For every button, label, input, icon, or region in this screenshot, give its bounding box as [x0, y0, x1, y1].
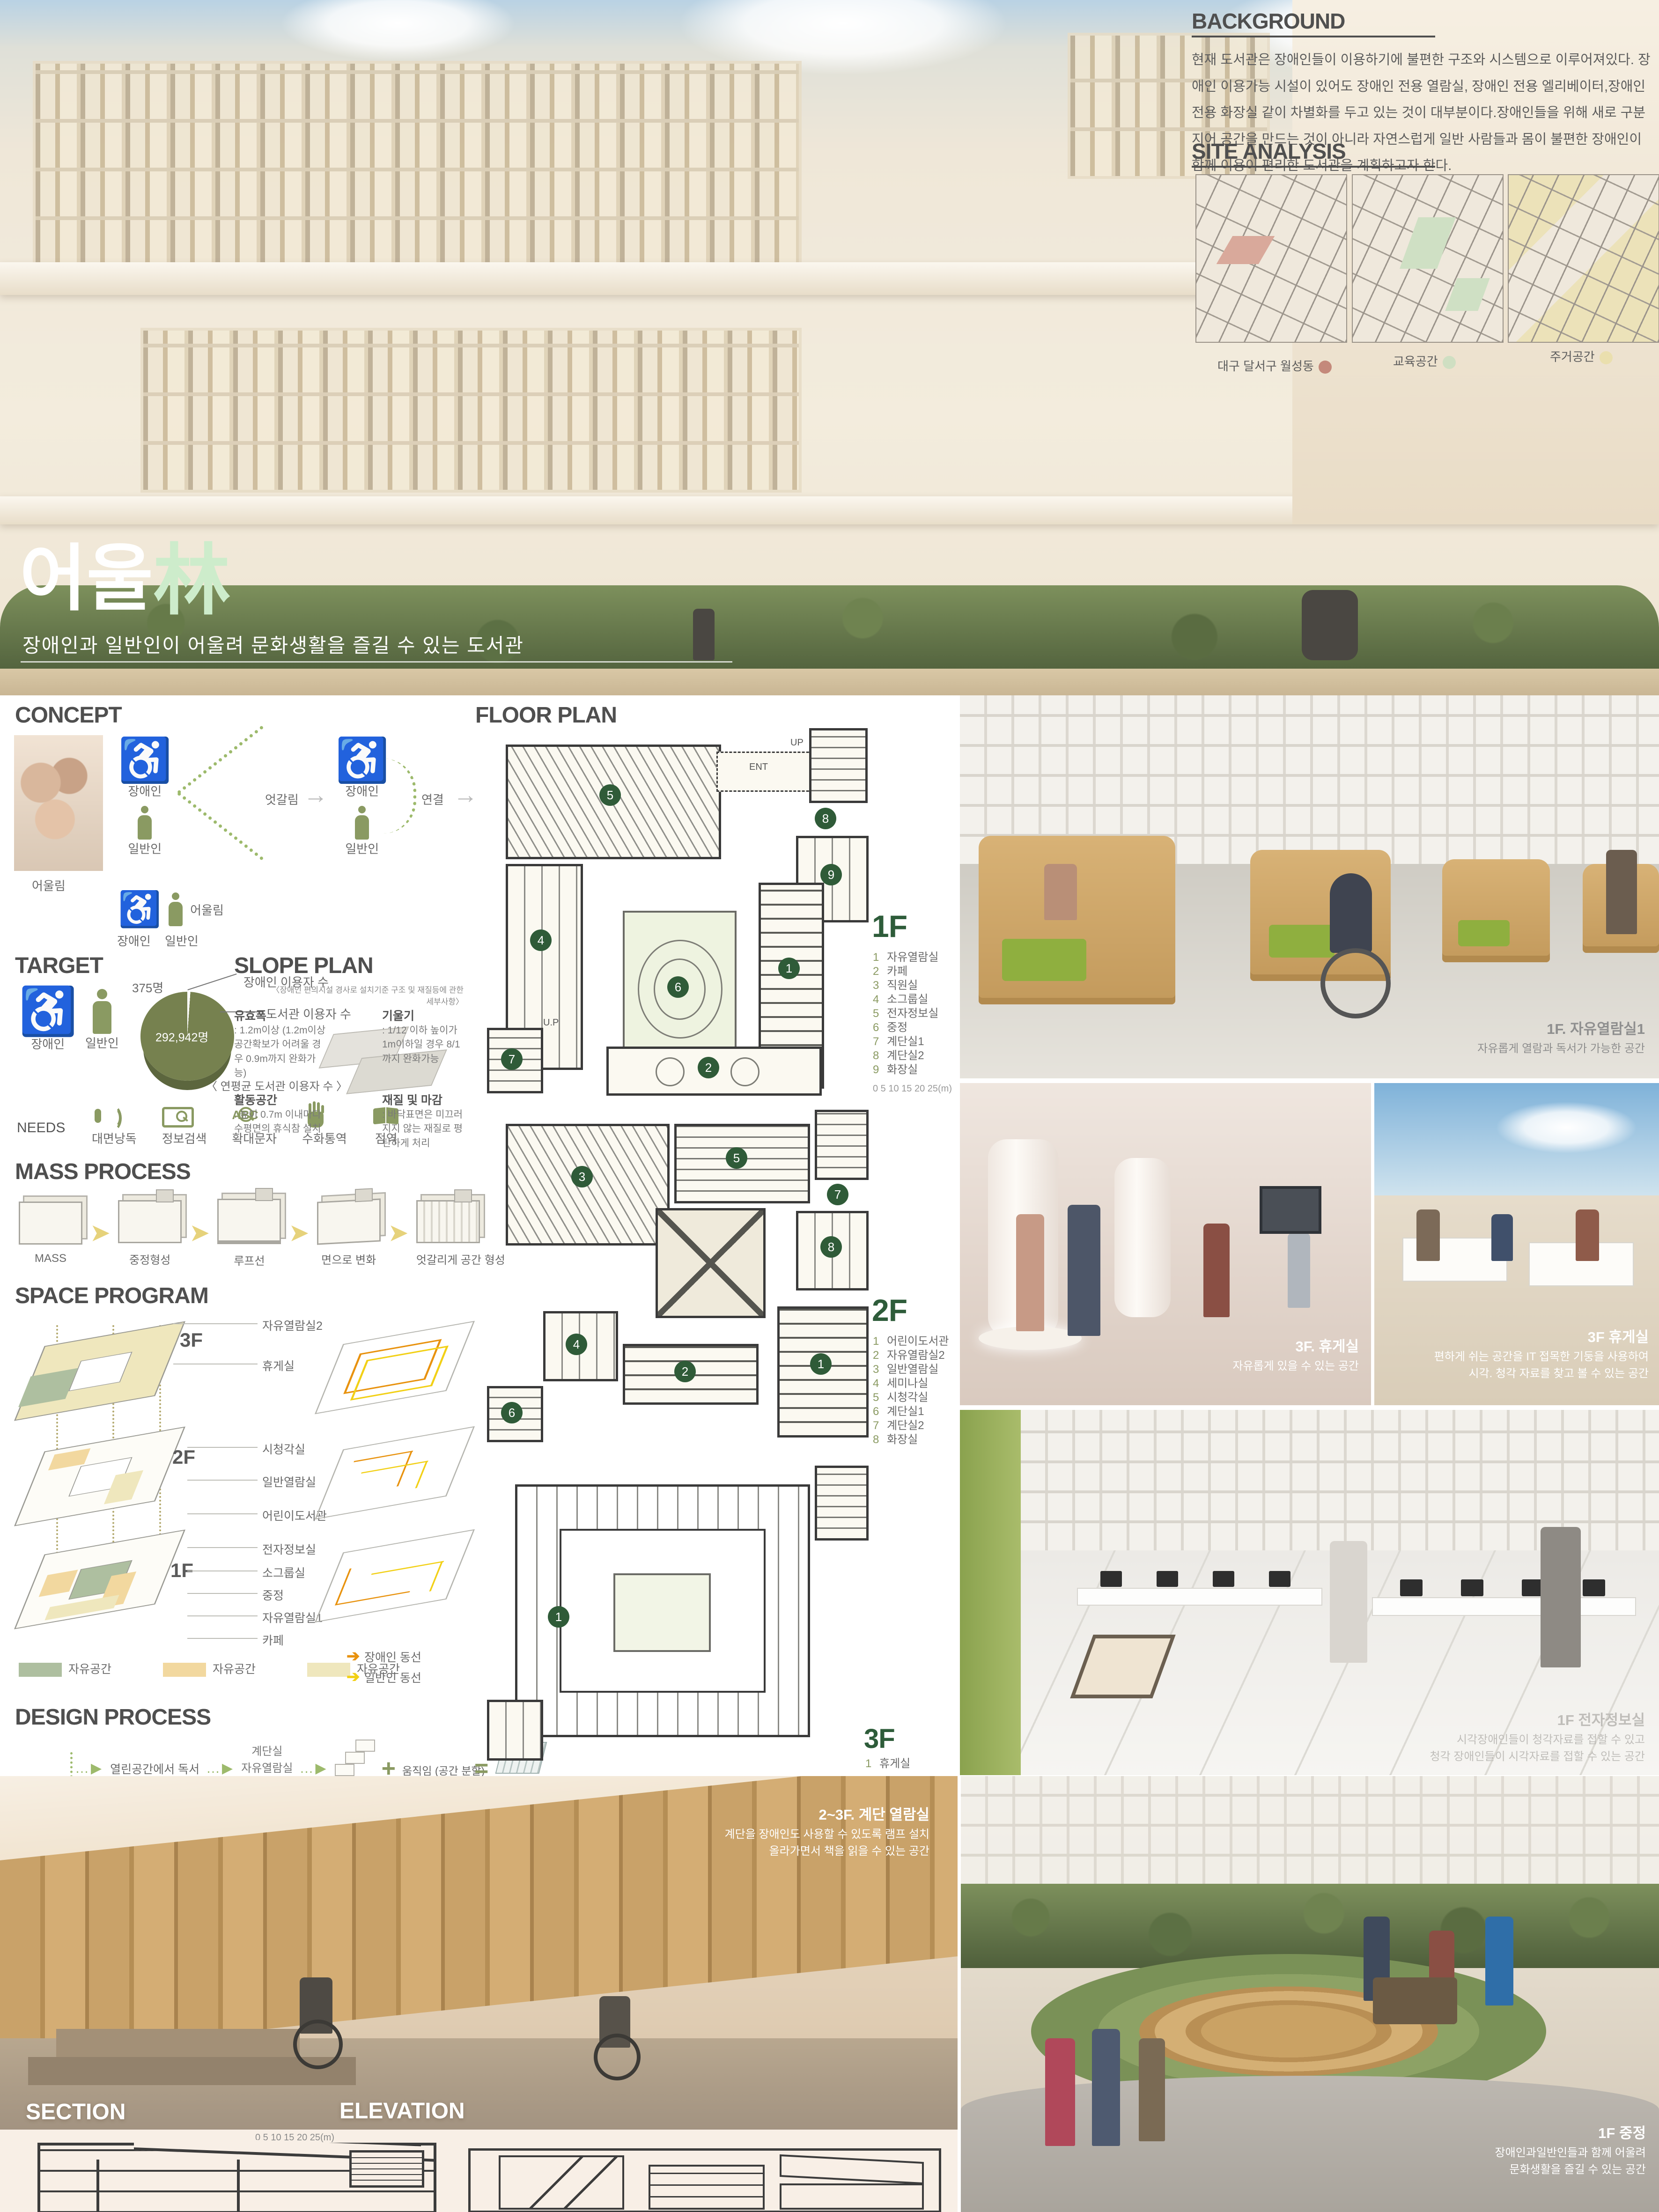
- ground-path: [0, 669, 1659, 695]
- legend-item: 5시청각실: [873, 1391, 949, 1405]
- room-badge: 7: [501, 1048, 523, 1070]
- tablet-display: [1213, 1571, 1234, 1587]
- stair-reading-caption: 2~3F. 계단 열람실 계단을 장애인도 사용할 수 있도록 램프 설치 올라…: [564, 1804, 929, 1860]
- connect-label: 연결: [421, 790, 444, 808]
- cross-arrows-icon: [178, 749, 258, 843]
- plate-1f: [14, 1529, 185, 1629]
- disabled-flow-path: [335, 1591, 410, 1606]
- room-badge: 2: [674, 1361, 696, 1382]
- disabled-flow-path: [354, 1451, 413, 1462]
- up-label: U.P: [543, 1018, 559, 1028]
- cloud-shape: [281, 0, 515, 61]
- step-platform: [56, 2029, 300, 2057]
- pie-small-value: 375명: [132, 979, 163, 996]
- flow-legend-disabled: ➔ 장애인 동선: [347, 1648, 421, 1665]
- room-badge: 1: [548, 1606, 569, 1628]
- dp-plus-label: 움직임 (공간 분할): [402, 1762, 468, 1778]
- plan-scale-note: 0 5 10 15 20 25(m): [873, 1084, 952, 1094]
- leader-line: [187, 1480, 258, 1481]
- arrow-icon: ➤: [289, 1222, 308, 1245]
- callout-line: [187, 973, 236, 990]
- leader-line: [173, 1364, 258, 1364]
- floor-slab: [0, 262, 1292, 295]
- person-figure: [1139, 2038, 1165, 2141]
- plan-void: [656, 1208, 766, 1318]
- general-flow-path: [415, 1461, 428, 1489]
- info-search-icon: [162, 1101, 190, 1129]
- legend-floor-2f: 2F: [872, 1292, 907, 1328]
- person-icon: 일반인: [85, 989, 119, 1051]
- mass-step-diagram: [19, 1202, 82, 1245]
- leader-line: [187, 1447, 258, 1448]
- slope-item-name: 재질 및 마감: [382, 1094, 442, 1107]
- wheelchair-icon: ♿: [118, 739, 172, 782]
- leader-line: [187, 1593, 258, 1594]
- person-figure: [1606, 850, 1637, 934]
- map-label-location: 대구 달서구 월성동: [1217, 357, 1332, 374]
- dotted-arrow-icon: …▶: [75, 1760, 103, 1777]
- tablet-display: [1100, 1571, 1122, 1587]
- room-label: 자유열람실1: [262, 1609, 323, 1626]
- slope-plan-title: SLOPE PLAN: [234, 953, 373, 979]
- rest-area-patch: [18, 1368, 78, 1407]
- person-figure: [693, 609, 715, 660]
- room-patch: [44, 1595, 119, 1620]
- needs-label: NEEDS: [17, 1120, 65, 1136]
- person-figure: [1068, 1205, 1100, 1336]
- wheelchair-user-figure: [1330, 873, 1372, 953]
- legend-item: 8화장실: [873, 1433, 949, 1447]
- person-figure: [1203, 1224, 1230, 1317]
- legend-item: 5전자정보실: [873, 1007, 952, 1021]
- legend-chip: [163, 1663, 206, 1677]
- mass-step-label: MASS: [19, 1252, 82, 1265]
- photo-caption: 3F. 휴게실 자유롭게 있을 수 있는 공간: [1097, 1336, 1359, 1375]
- slope-item-desc: : 높이 0.7m 이내마다 수평면의 휴식참 설치: [234, 1108, 328, 1136]
- photo-lounge: 3F. 휴게실 자유롭게 있을 수 있는 공간: [960, 1083, 1371, 1405]
- leader-line: [187, 1615, 258, 1616]
- legend-dot: [1600, 351, 1613, 364]
- group2-bottom-label: 일반인: [335, 840, 389, 857]
- background-section-title: BACKGROUND: [1192, 8, 1655, 34]
- orange-arrow-icon: ➔: [347, 1647, 364, 1665]
- flow-plate-3f: [315, 1321, 475, 1414]
- legend-item: 7계단실2: [873, 1419, 949, 1433]
- pie-big-value: 292,942명: [155, 1028, 208, 1045]
- disabled-flow-path: [335, 1568, 352, 1605]
- flow-legend-general: ➔ 일반인 동선: [347, 1669, 421, 1686]
- plan-court-void: [613, 1573, 711, 1652]
- leader-line: [173, 1323, 258, 1324]
- person-figure: [1541, 1527, 1581, 1667]
- site-map-location: [1195, 174, 1347, 343]
- space-legend-item: 자유공간: [19, 1660, 111, 1677]
- wheelchair-icon: ♿: [19, 985, 77, 1038]
- project-subtitle: 장애인과 일반인이 어울려 문화생활을 즐길 수 있는 도서관: [22, 630, 524, 658]
- building-interior-band: [961, 1776, 1659, 1884]
- tablet-display: [1583, 1579, 1605, 1596]
- needs-item-label: 정보검색: [162, 1129, 207, 1147]
- room-badge: 7: [827, 1184, 848, 1205]
- tablet-display: [1461, 1579, 1483, 1596]
- person-figure: [1092, 2029, 1120, 2146]
- room-badge: 8: [820, 1236, 842, 1258]
- mass-step-label: 면으로 변화: [317, 1251, 381, 1267]
- heading-rule: [1192, 166, 1435, 168]
- pod-cushion: [1269, 925, 1335, 958]
- wheelchair-wheel: [1320, 948, 1391, 1018]
- room-label: 전자정보실: [262, 1541, 316, 1557]
- space-legend-item: 자유공간: [163, 1660, 256, 1677]
- person-figure: [1016, 1214, 1044, 1331]
- floor-marker-3f: 3F: [180, 1329, 203, 1351]
- slope-item-desc: : 1/12 이하 높이가 1m이하일 경우 8/1까지 완화가능: [382, 1024, 466, 1066]
- legend-item: 6계단실1: [873, 1405, 949, 1419]
- site-analysis-title: SITE ANALYSIS: [1192, 139, 1346, 164]
- room-badge: 6: [667, 976, 689, 998]
- reading-pod: [1442, 859, 1550, 962]
- wheelchair-wheel: [293, 2020, 343, 2069]
- legend-item: 7계단실1: [873, 1035, 952, 1049]
- presentation-board: 어울 林 장애인과 일반인이 어울려 문화생활을 즐길 수 있는 도서관 BAC…: [0, 0, 1659, 2212]
- yellow-arrow-icon: ➔: [347, 1668, 364, 1686]
- person-figure: [1416, 1209, 1440, 1261]
- target-title: TARGET: [15, 953, 103, 979]
- slope-item-name: 활동공간: [234, 1094, 277, 1107]
- cloud-shape: [1496, 1102, 1637, 1153]
- general-flow-path: [361, 1460, 428, 1474]
- room-label: 자유열람실2: [262, 1317, 323, 1334]
- bookshelf-wall-lower: [140, 328, 802, 493]
- room-badge: 1: [810, 1353, 832, 1375]
- site-marker: [1217, 236, 1275, 264]
- plan-stair2: [809, 728, 868, 803]
- slope-plan-subtitle: 〈장애인 편의시설 경사로 설치기준 구조 및 재질등에 관한 세부사항〉: [262, 983, 464, 1007]
- title-underline: [21, 661, 732, 663]
- result-right-label: 일반인: [165, 932, 199, 949]
- cross-label: 엇갈림: [265, 790, 299, 808]
- legend-item: 3직원실: [873, 979, 952, 993]
- display-table: [1077, 1588, 1322, 1606]
- legend-item: 4소그룹실: [873, 993, 952, 1007]
- wheelchair-wheel: [594, 2034, 641, 2080]
- arrow-right-icon: →: [453, 783, 478, 807]
- space-program-title: SPACE PROGRAM: [15, 1283, 208, 1309]
- target-right-label: 일반인: [85, 1034, 119, 1051]
- mass-step-diagram: [217, 1199, 281, 1244]
- photo-free-reading-room: 1F. 자유열람실1 자유롭게 열람과 독서가 가능한 공간: [960, 695, 1659, 1078]
- disabled-flow-path: [397, 1451, 413, 1486]
- legend-dot: [1443, 356, 1456, 369]
- room-label: 시청각실: [262, 1440, 305, 1457]
- needs-item-label: 대면낭독: [92, 1129, 137, 1147]
- room-label: 중정: [262, 1586, 284, 1603]
- plan-2f: 3 5 7 8 1 4 2 6: [487, 1110, 866, 1442]
- section-label: SECTION: [26, 2099, 125, 2125]
- tablet-display: [1400, 1579, 1423, 1596]
- design-process-title: DESIGN PROCESS: [15, 1704, 211, 1730]
- person-figure: [1044, 864, 1077, 920]
- heading-rule: [1192, 36, 1435, 37]
- general-flow-path: [429, 1561, 443, 1592]
- legend-item: 4세미나실: [873, 1377, 949, 1391]
- leader-line: [187, 1513, 258, 1514]
- general-flow-path: [371, 1561, 444, 1575]
- legend-floor-3f: 3F: [864, 1723, 895, 1755]
- person-figure: [1288, 1233, 1310, 1308]
- arrow-right-icon: →: [303, 783, 328, 807]
- room-badge: 5: [599, 784, 621, 806]
- person-figure: [1330, 1541, 1367, 1663]
- tablet-display: [1157, 1571, 1178, 1587]
- room-badge: 1: [778, 958, 800, 979]
- room-badge: 5: [726, 1147, 747, 1169]
- legend-item: 8계단실2: [873, 1049, 952, 1063]
- legend-chip: [307, 1663, 350, 1677]
- legend-item: 3일반열람실: [873, 1363, 949, 1377]
- person-figure: [1576, 1209, 1599, 1261]
- pod-cushion: [1458, 920, 1510, 946]
- room-label: 일반열람실: [262, 1473, 316, 1490]
- leader-line: [187, 1547, 258, 1548]
- it-column: [1114, 1158, 1171, 1317]
- drawings-panel: 0 5 10 15 20 25(m): [0, 2130, 958, 2212]
- plan-stair2: [815, 1110, 869, 1180]
- courtyard-caption: 1F 중정 장애인과일반인들과 함께 어울려 문화생활을 즐길 수 있는 공간: [1346, 2123, 1646, 2178]
- concept-title: CONCEPT: [15, 702, 122, 728]
- legend-item: 6중정: [873, 1021, 952, 1035]
- floor-marker-2f: 2F: [172, 1446, 195, 1468]
- legend-floor-1f: 1F: [872, 908, 907, 944]
- bookshelf-wall-upper: [33, 61, 802, 268]
- legend-item: 1휴게실: [865, 1757, 910, 1771]
- map-label-education: 교육공간: [1393, 352, 1456, 369]
- legend-item: 9화장실: [873, 1063, 952, 1077]
- person-figure: [1491, 1214, 1513, 1261]
- photo-electronic-room: 1F 전자정보실 시각장애인들이 청각자료를 접할 수 있고 청각 장애인들이 …: [960, 1410, 1659, 1775]
- photo-caption: 1F 전자정보실 시각장애인들이 청각자료를 접할 수 있고 청각 장애인들이 …: [1177, 1710, 1645, 1765]
- legend-item: 2카페: [873, 965, 952, 979]
- room-badge: 3: [571, 1166, 593, 1187]
- concept-photo-caption: 어울림: [32, 877, 66, 894]
- education-zone: [1400, 217, 1456, 269]
- site-map-residential: [1508, 174, 1659, 343]
- person-icon: [169, 892, 183, 926]
- concept-photo: [14, 735, 103, 871]
- wood-bench: [1373, 1977, 1457, 2024]
- slope-item-name: 유효폭: [234, 1010, 266, 1023]
- arrow-icon: ➤: [389, 1222, 408, 1245]
- plan-stair: [815, 1466, 869, 1541]
- photo-caption: 3F 휴게실 편하게 쉬는 공간을 IT 접목한 기둥을 사용하여 시각. 청각…: [1386, 1327, 1649, 1382]
- project-title-hanja: 林: [153, 542, 230, 619]
- dotted-arrow-icon: …▶: [206, 1760, 235, 1777]
- legend-item: 2자유열람실2: [873, 1349, 949, 1363]
- slope-item-desc: : 바닥표면은 미끄러지지 않는 재질로 평탄하게 처리: [382, 1108, 466, 1150]
- display-table: [1372, 1597, 1636, 1616]
- plan-3f: 1: [487, 1456, 866, 1770]
- room-badge: 8: [815, 808, 836, 829]
- site-map-education: [1352, 174, 1504, 343]
- flow-plate-2f: [315, 1426, 475, 1519]
- dp-goal: 열린공간에서 독서: [110, 1760, 199, 1777]
- education-zone: [1445, 278, 1489, 311]
- photo-caption: 1F. 자유열람실1 자유롭게 열람과 독서가 가능한 공간: [1224, 1018, 1645, 1057]
- arrow-icon: ➤: [190, 1222, 209, 1245]
- plan-1f: 5 ENT UP 8 9 4 6 1 2 7 U.P: [487, 723, 866, 1098]
- leader-line: [187, 1638, 258, 1639]
- pod-cushion: [1002, 939, 1086, 981]
- elevation-label: ELEVATION: [339, 2098, 465, 2124]
- person-figure: [1045, 2038, 1075, 2146]
- room-label: 카페: [262, 1631, 284, 1648]
- green-wall: [960, 1410, 1021, 1775]
- entrance-label: ENT: [749, 762, 768, 773]
- tablet-display: [1269, 1571, 1290, 1587]
- photo-rooftop-rest: 3F 휴게실 편하게 쉬는 공간을 IT 접목한 기둥을 사용하여 시각. 청각…: [1374, 1083, 1659, 1405]
- room-label: 소그룹실: [262, 1564, 305, 1581]
- wall-screen: [1260, 1186, 1321, 1234]
- mass-step-diagram: [416, 1200, 480, 1243]
- room-badge: 4: [530, 929, 552, 951]
- arrow-icon: ➤: [91, 1222, 110, 1245]
- up-label: UP: [790, 737, 804, 748]
- photographer-figure: [1302, 590, 1358, 660]
- group1-bottom-label: 일반인: [118, 840, 172, 857]
- legend-item: 1어린이도서관: [873, 1335, 949, 1349]
- stairs-icon: [335, 1740, 375, 1776]
- mass-step-label: 중정형성: [118, 1251, 182, 1267]
- dotted-arrow-icon: …▶: [300, 1760, 328, 1777]
- connect-arc-icon: [380, 759, 416, 833]
- hero-render-image: 어울 林 장애인과 일반인이 어울려 문화생활을 즐길 수 있는 도서관 BAC…: [0, 0, 1659, 695]
- wheelchair-icon: ♿: [118, 892, 161, 927]
- room-badge: 6: [501, 1402, 523, 1423]
- map-label-residential: 주거공간: [1550, 347, 1613, 365]
- slope-item-name: 기울기: [382, 1010, 414, 1023]
- legend-item: 1자유열람실: [873, 951, 952, 965]
- mass-process-title: MASS PROCESS: [15, 1159, 191, 1185]
- room-badge: 4: [566, 1334, 587, 1355]
- group1-top-label: 장애인: [118, 782, 172, 799]
- mass-step-label: 루프선: [217, 1252, 281, 1268]
- voice-icon: [92, 1101, 120, 1129]
- flow-plate-1f: [315, 1529, 475, 1622]
- leader-line: [187, 1571, 258, 1571]
- mass-step-diagram: [118, 1200, 182, 1243]
- plan-room: [487, 1700, 543, 1761]
- mass-step-diagram: [317, 1198, 381, 1245]
- photo-stair-reading: 2~3F. 계단 열람실 계단을 장애인도 사용할 수 있도록 램프 설치 올라…: [0, 1776, 958, 2212]
- result-label: 어울림: [190, 901, 224, 918]
- legend-chip: [19, 1663, 62, 1677]
- slope-item-desc: : 1.2m이상 (1.2m이상 공간확보가 어려울 경우 0.9m까지 완화가…: [234, 1024, 328, 1081]
- elevation-drawing: [468, 2148, 941, 2212]
- section-drawing: [37, 2143, 436, 2212]
- room-badge: 9: [820, 864, 842, 885]
- room-badge: 2: [698, 1057, 719, 1078]
- room-label: 휴게실: [262, 1357, 295, 1374]
- project-title-korean: 어울: [20, 542, 153, 615]
- photo-courtyard: 1F 중정 장애인과일반인들과 함께 어울려 문화생활을 즐길 수 있는 공간: [961, 1776, 1659, 2212]
- person-icon: [118, 806, 172, 840]
- person-figure: [1485, 1917, 1513, 2006]
- result-left-label: 장애인: [117, 932, 151, 949]
- legend-dot: [1319, 361, 1332, 374]
